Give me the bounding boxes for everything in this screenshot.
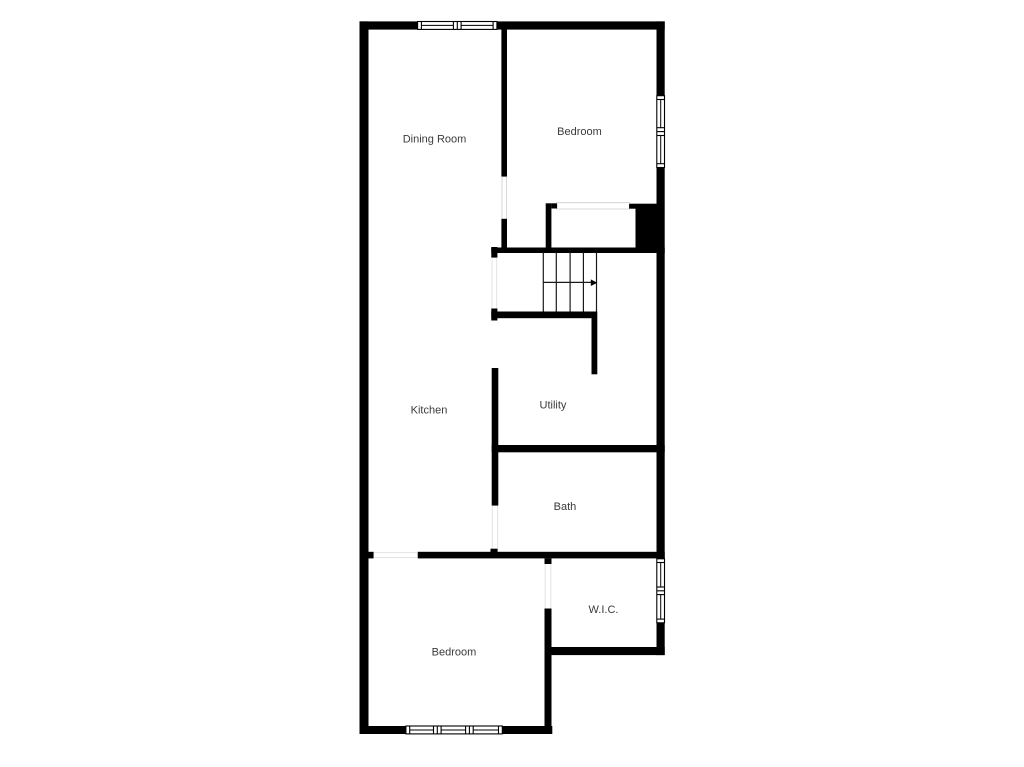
svg-text:Kitchen: Kitchen bbox=[411, 404, 448, 416]
svg-text:Utility: Utility bbox=[540, 399, 567, 411]
svg-text:W.I.C.: W.I.C. bbox=[589, 604, 619, 616]
svg-text:Bedroom: Bedroom bbox=[432, 646, 477, 658]
svg-text:Dining Room: Dining Room bbox=[403, 134, 467, 146]
svg-text:Bath: Bath bbox=[554, 501, 577, 513]
svg-text:Bedroom: Bedroom bbox=[557, 126, 602, 138]
